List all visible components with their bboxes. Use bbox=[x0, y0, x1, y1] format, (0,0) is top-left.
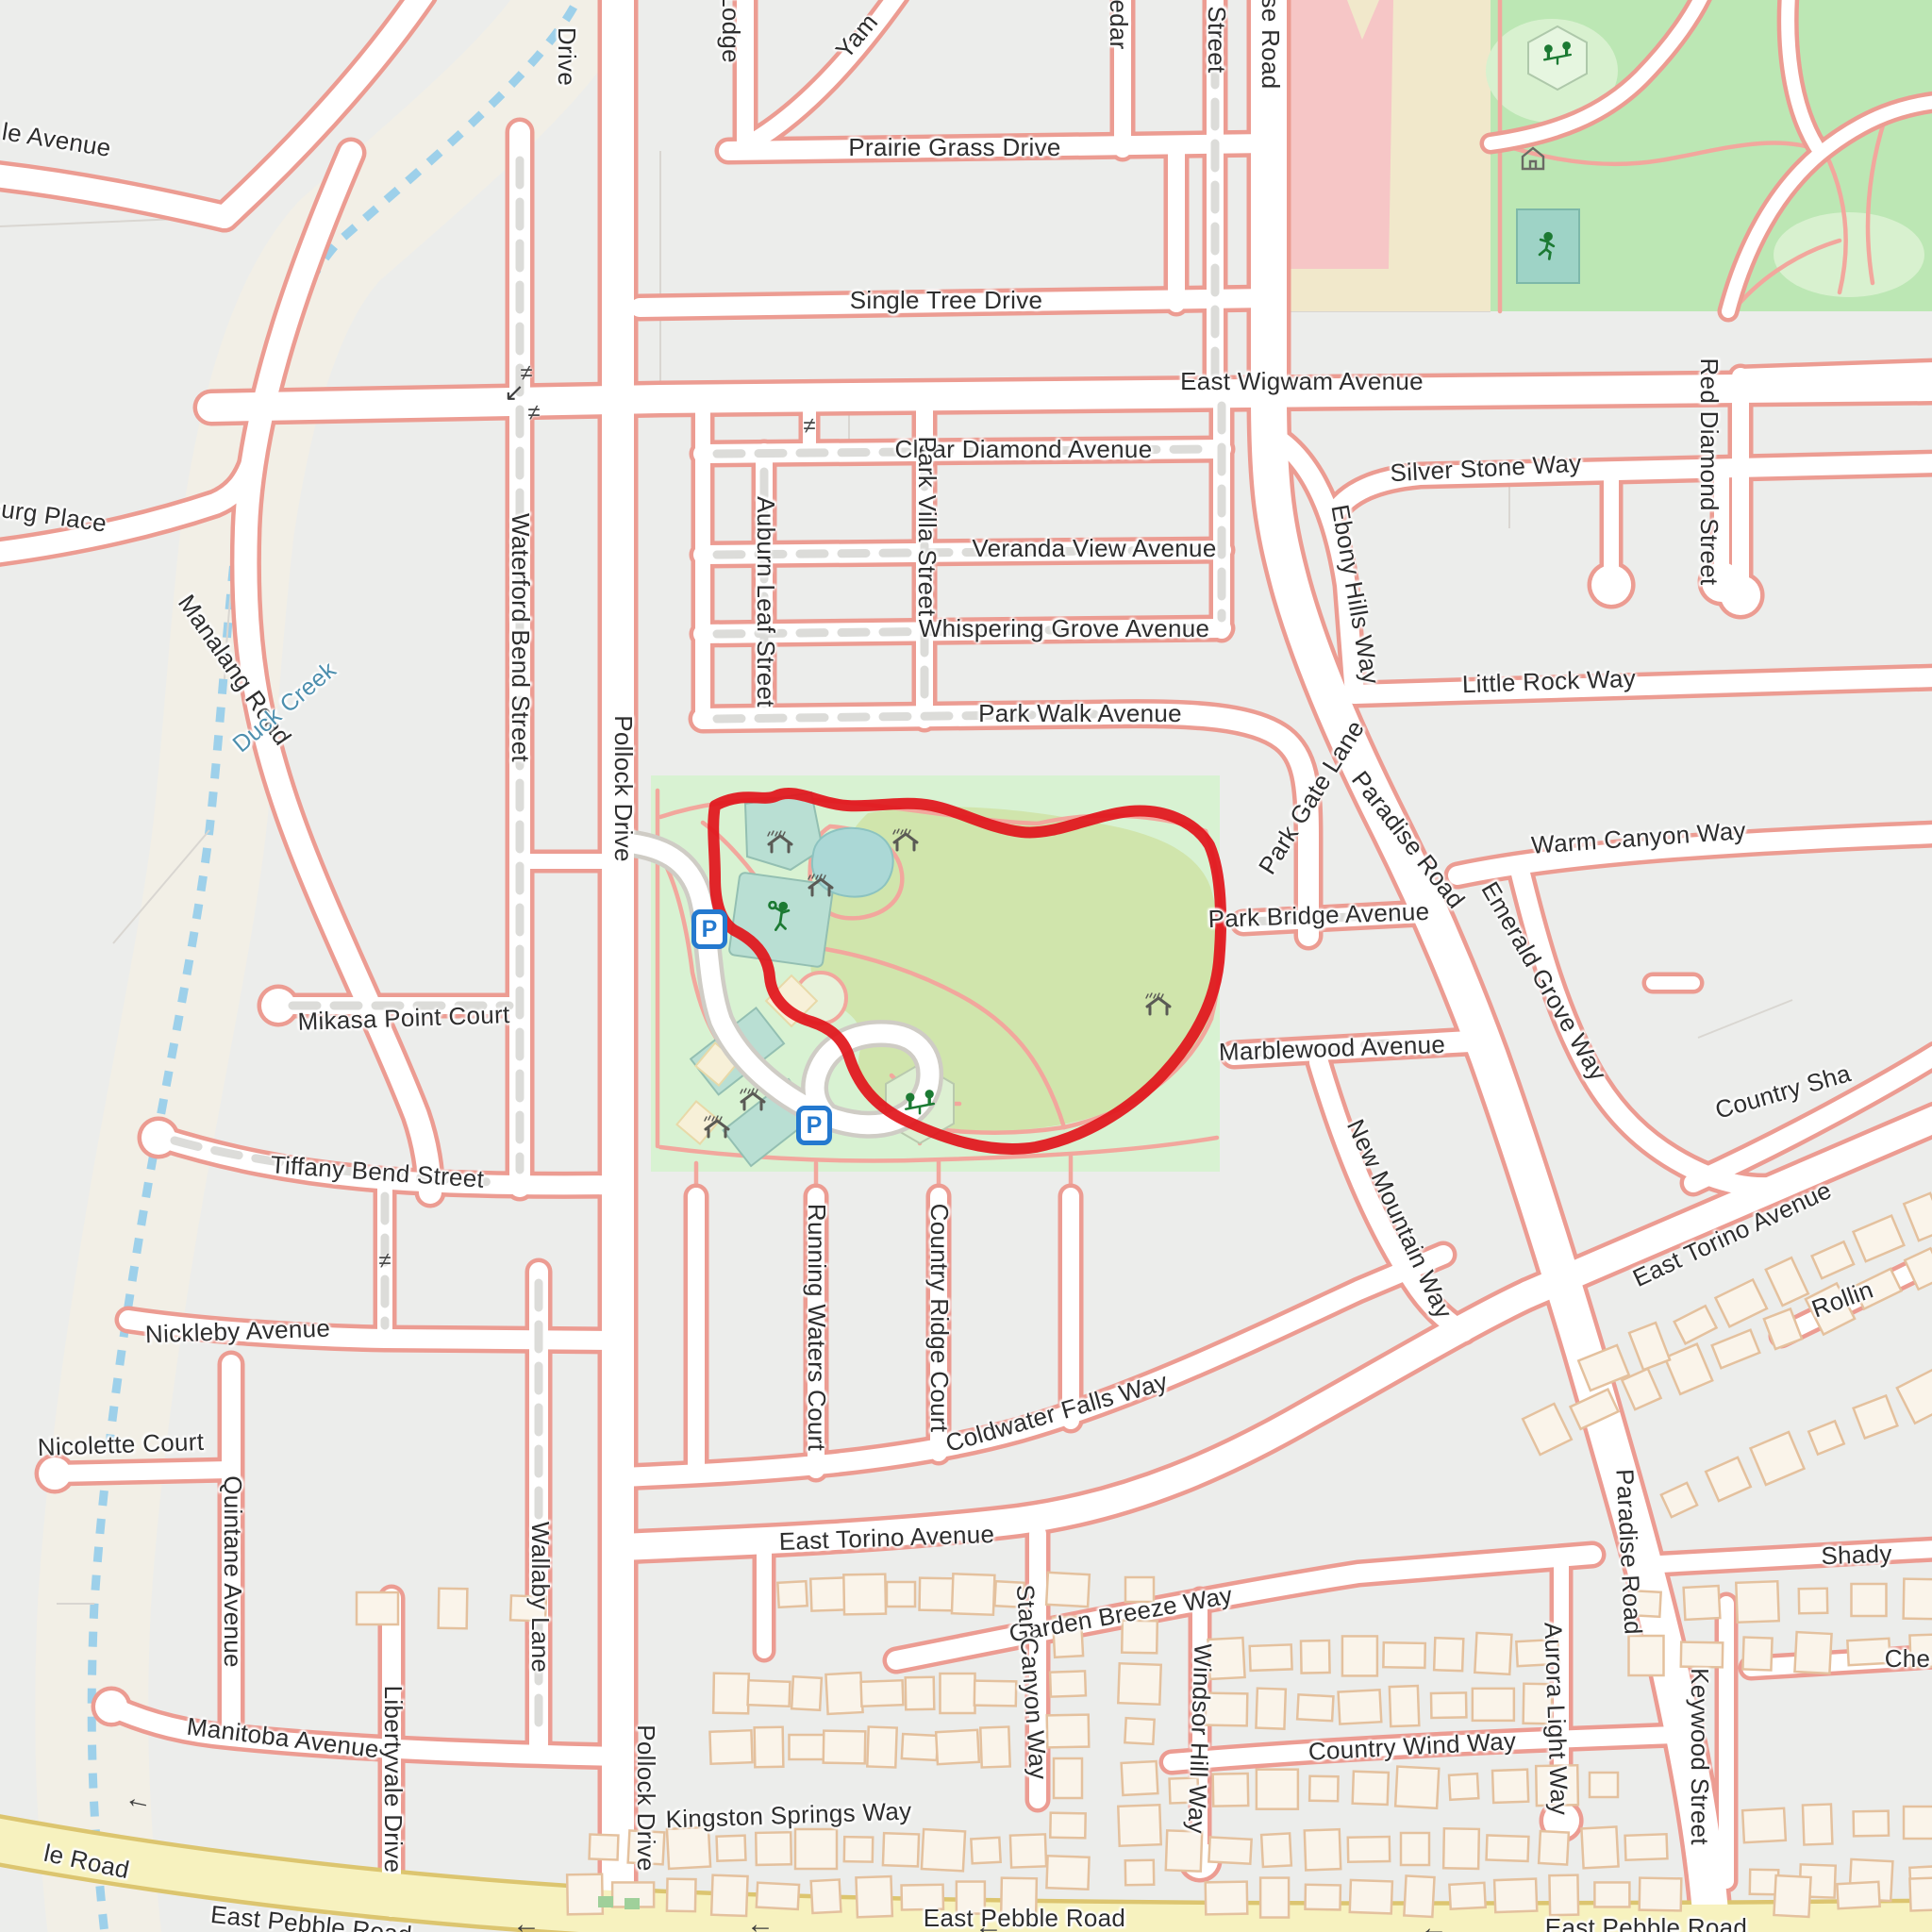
street-label-veranda-view: Veranda View Avenue bbox=[972, 536, 1216, 560]
street-label-quintane: Quintane Avenue bbox=[221, 1475, 245, 1668]
oneway-arrow-icon: ↙ bbox=[504, 378, 525, 408]
street-label-street: Street bbox=[1205, 6, 1229, 73]
street-label-auburn-leaf: Auburn Leaf Street bbox=[754, 496, 778, 708]
street-label-single-tree: Single Tree Drive bbox=[850, 288, 1043, 312]
oneway-arrow-icon: ← bbox=[746, 1908, 774, 1932]
street-label-red-diamond: Red Diamond Street bbox=[1697, 358, 1722, 586]
street-label-east-pebble-e: East Pebble Road bbox=[1545, 1915, 1747, 1932]
street-label-windsor-hill: Windsor Hill Way bbox=[1184, 1643, 1215, 1835]
street-label-little-rock: Little Rock Way bbox=[1462, 666, 1637, 696]
picnic-shelter-icon bbox=[766, 825, 794, 854]
street-label-park-walk: Park Walk Avenue bbox=[978, 701, 1182, 725]
street-label-shady: Shady bbox=[1821, 1541, 1892, 1569]
playground-icon bbox=[1542, 40, 1573, 70]
gate-icon: ≠ bbox=[378, 1248, 391, 1274]
tennis-player-icon bbox=[765, 901, 797, 933]
street-label-east-pebble-c: East Pebble Road bbox=[924, 1906, 1125, 1930]
picnic-shelter-icon bbox=[807, 869, 835, 897]
street-label-park-bridge: Park Bridge Avenue bbox=[1207, 899, 1430, 931]
street-label-cedar: edar bbox=[1107, 0, 1131, 50]
picnic-shelter-icon bbox=[739, 1083, 767, 1111]
map-canvas[interactable]: P P ≠ ≠ ≠ ≠ ↙ ← ← ← ← ← le Avenue Drive … bbox=[0, 0, 1932, 1932]
oneway-arrow-icon: ← bbox=[512, 1908, 541, 1932]
street-label-wallaby: Wallaby Lane bbox=[528, 1522, 553, 1673]
playground-icon bbox=[904, 1088, 936, 1120]
street-label-park-villa: Park Villa Street bbox=[915, 436, 940, 616]
house-icon bbox=[1519, 144, 1547, 173]
oneway-arrow-icon: ← bbox=[1420, 1912, 1448, 1932]
school-building bbox=[1283, 0, 1393, 269]
picnic-shelter-icon bbox=[891, 824, 920, 852]
street-label-libertyvale: Libertyvale Drive bbox=[381, 1686, 406, 1874]
picnic-shelter-icon bbox=[703, 1110, 731, 1139]
street-label-pollock-s: Pollock Drive bbox=[634, 1724, 658, 1872]
street-label-whispering-grove: Whispering Grove Avenue bbox=[919, 616, 1209, 641]
street-label-east-torino-s: East Torino Avenue bbox=[778, 1522, 994, 1554]
picnic-shelter-icon bbox=[1144, 988, 1173, 1016]
gate-icon: ≠ bbox=[803, 413, 815, 440]
street-label-marblewood: Marblewood Avenue bbox=[1219, 1032, 1446, 1064]
street-label-prairie-grass: Prairie Grass Drive bbox=[848, 135, 1060, 159]
street-label-se-road: se Road bbox=[1258, 0, 1283, 89]
street-label-nicolette: Nicolette Court bbox=[37, 1429, 204, 1459]
basketball-player-icon bbox=[1531, 231, 1563, 263]
street-label-mikasa-point: Mikasa Point Court bbox=[297, 1002, 510, 1034]
parking-icon: P bbox=[796, 1106, 832, 1145]
gate-icon: ≠ bbox=[527, 400, 540, 426]
street-label-east-wigwam: East Wigwam Avenue bbox=[1180, 369, 1424, 393]
street-label-country-ridge: Country Ridge Court bbox=[927, 1204, 952, 1433]
street-label-lodge: Lodge bbox=[719, 0, 743, 63]
street-label-che: Che bbox=[1885, 1646, 1931, 1671]
street-label-drive: Drive bbox=[555, 27, 579, 86]
street-label-keywood: Keywood Street bbox=[1688, 1668, 1712, 1845]
street-label-waterford-bend: Waterford Bend Street bbox=[508, 513, 533, 762]
street-label-running-waters: Running Waters Court bbox=[805, 1204, 829, 1451]
street-label-aurora-light: Aurora Light Way bbox=[1541, 1622, 1572, 1815]
parking-icon: P bbox=[691, 909, 727, 949]
street-label-pollock-mid: Pollock Drive bbox=[611, 715, 636, 862]
street-label-nickleby: Nickleby Avenue bbox=[144, 1316, 330, 1347]
